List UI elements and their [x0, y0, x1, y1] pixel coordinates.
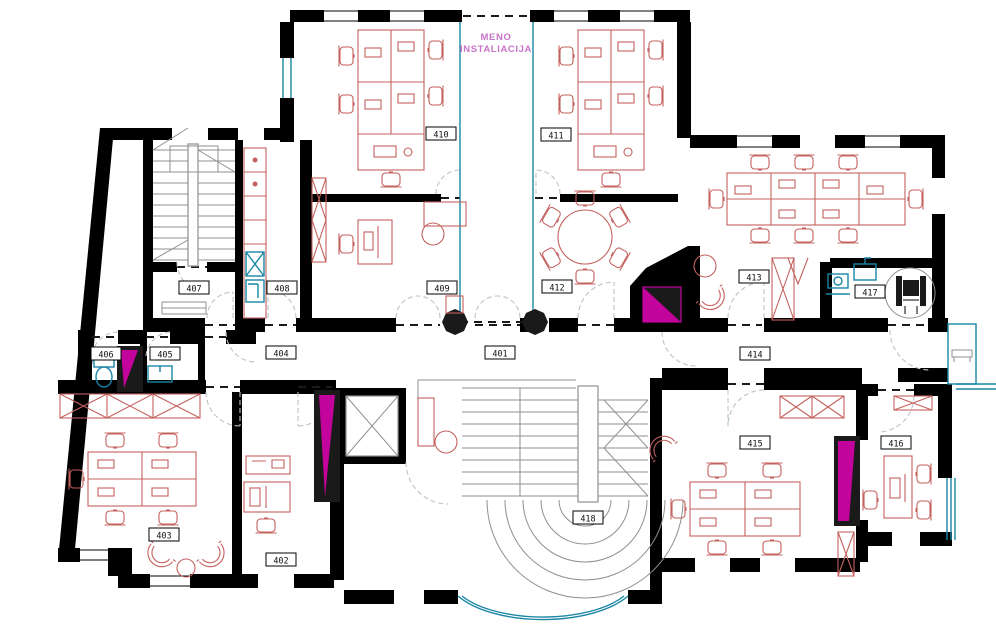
room-label-413: 413 [739, 270, 769, 284]
room-label-410: 410 [426, 127, 456, 141]
svg-text:416: 416 [888, 440, 903, 450]
stairwell-west [153, 128, 235, 266]
svg-text:401: 401 [492, 350, 507, 360]
shaft-412 [643, 287, 681, 322]
room-label-411: 411 [541, 128, 571, 142]
room-413-furniture [694, 155, 923, 320]
room-label-418: 418 [573, 511, 603, 525]
svg-text:418: 418 [580, 515, 595, 525]
room-411-furniture [559, 30, 663, 187]
room-412-furniture [540, 191, 631, 284]
svg-text:412: 412 [549, 284, 564, 294]
svg-text:410: 410 [433, 131, 448, 141]
room-402-furniture [244, 456, 290, 533]
walls-layer [58, 10, 952, 604]
room-label-407: 407 [179, 281, 209, 295]
stair-418 [418, 380, 683, 598]
room-label-412: 412 [542, 280, 572, 294]
svg-text:409: 409 [434, 285, 449, 295]
svg-text:404: 404 [273, 350, 288, 360]
wheelchair-417 [885, 268, 935, 318]
room-407-mat [162, 302, 206, 314]
svg-text:414: 414 [747, 351, 762, 361]
room-label-403: 403 [149, 528, 179, 542]
kitchen-counter-408 [244, 148, 266, 318]
room-label-416: 416 [881, 436, 911, 450]
title-line-2: INSTALIACIJA [460, 44, 532, 55]
shaft-415 [834, 436, 860, 526]
sink-405 [148, 366, 172, 382]
floor-plan-page: MENO INSTALIACIJA 4014024034044054064074… [0, 0, 996, 641]
shaft-402 [314, 390, 340, 502]
meno-installation-shaft [460, 22, 533, 318]
room-415-furniture [643, 396, 854, 576]
title-line-1: MENO [481, 32, 512, 43]
room-label-415: 415 [740, 436, 770, 450]
room-416-furniture [863, 396, 932, 521]
kitchen-appliance [246, 280, 264, 302]
svg-text:417: 417 [862, 289, 877, 299]
room-label-417: 417 [855, 285, 885, 299]
room-label-404: 404 [266, 346, 296, 360]
room-label-405: 405 [150, 347, 180, 361]
svg-text:411: 411 [548, 132, 563, 142]
floor-plan-canvas: MENO INSTALIACIJA 4014024034044054064074… [0, 0, 996, 641]
room-label-408: 408 [267, 281, 297, 295]
svg-text:407: 407 [186, 285, 201, 295]
kitchen-sink [246, 252, 264, 276]
room-label-409: 409 [427, 281, 457, 295]
lobby-furniture [418, 398, 457, 453]
svg-text:415: 415 [747, 440, 762, 450]
room-410-furniture [339, 30, 443, 187]
svg-text:403: 403 [156, 532, 171, 542]
window-bench [952, 350, 972, 362]
svg-text:408: 408 [274, 285, 289, 295]
svg-text:402: 402 [273, 557, 288, 567]
svg-text:405: 405 [157, 351, 172, 361]
room-label-406: 406 [91, 347, 121, 361]
furniture-layer [60, 30, 932, 577]
room-label-402: 402 [266, 553, 296, 567]
title-block: MENO INSTALIACIJA [460, 32, 532, 55]
svg-text:406: 406 [98, 351, 113, 361]
svg-text:413: 413 [746, 274, 761, 284]
room-labels: 4014024034044054064074084094104114124134… [91, 127, 911, 567]
door-swings-layer [92, 170, 930, 504]
room-label-401: 401 [485, 346, 515, 360]
room-label-414: 414 [740, 347, 770, 361]
